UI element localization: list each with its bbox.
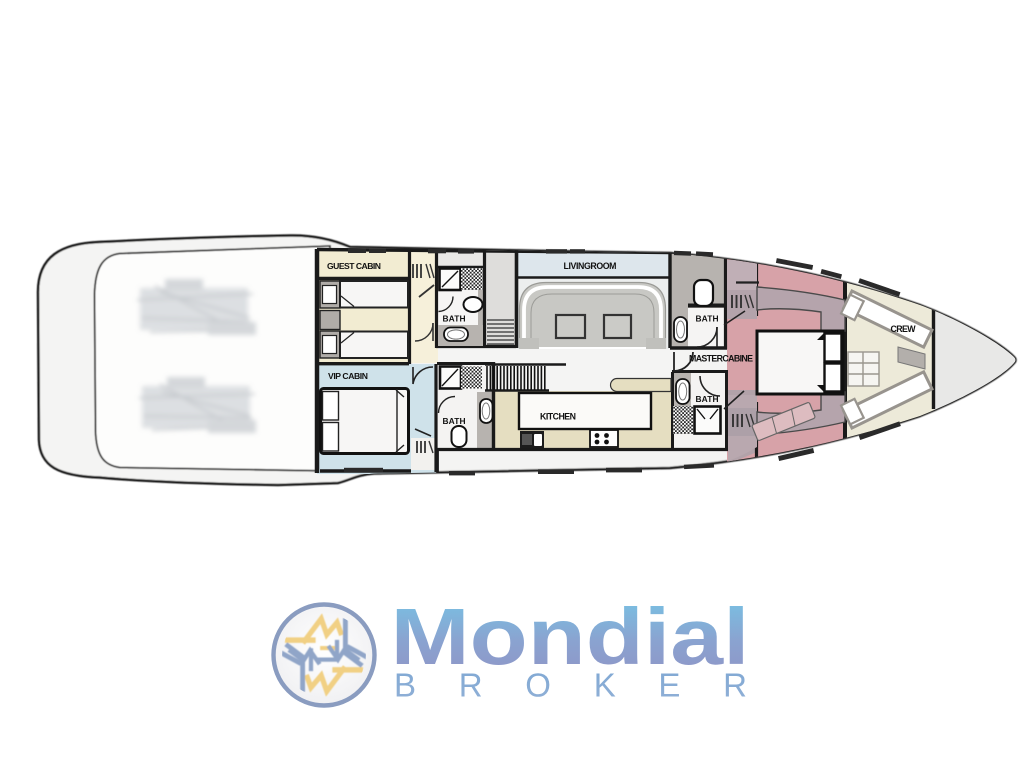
- svg-text:BATH: BATH: [696, 314, 719, 324]
- svg-text:CREW: CREW: [891, 324, 917, 334]
- svg-text:KITCHEN: KITCHEN: [540, 412, 576, 422]
- svg-text:GUEST CABIN: GUEST CABIN: [327, 261, 381, 271]
- svg-text:VIP CABIN: VIP CABIN: [328, 371, 368, 381]
- svg-text:BATH: BATH: [443, 416, 466, 426]
- svg-text:Mondial: Mondial: [391, 592, 750, 681]
- svg-text:MASTERCABINE: MASTERCABINE: [689, 354, 753, 364]
- svg-text:BATH: BATH: [443, 314, 466, 324]
- svg-text:LIVINGROOM: LIVINGROOM: [564, 261, 617, 271]
